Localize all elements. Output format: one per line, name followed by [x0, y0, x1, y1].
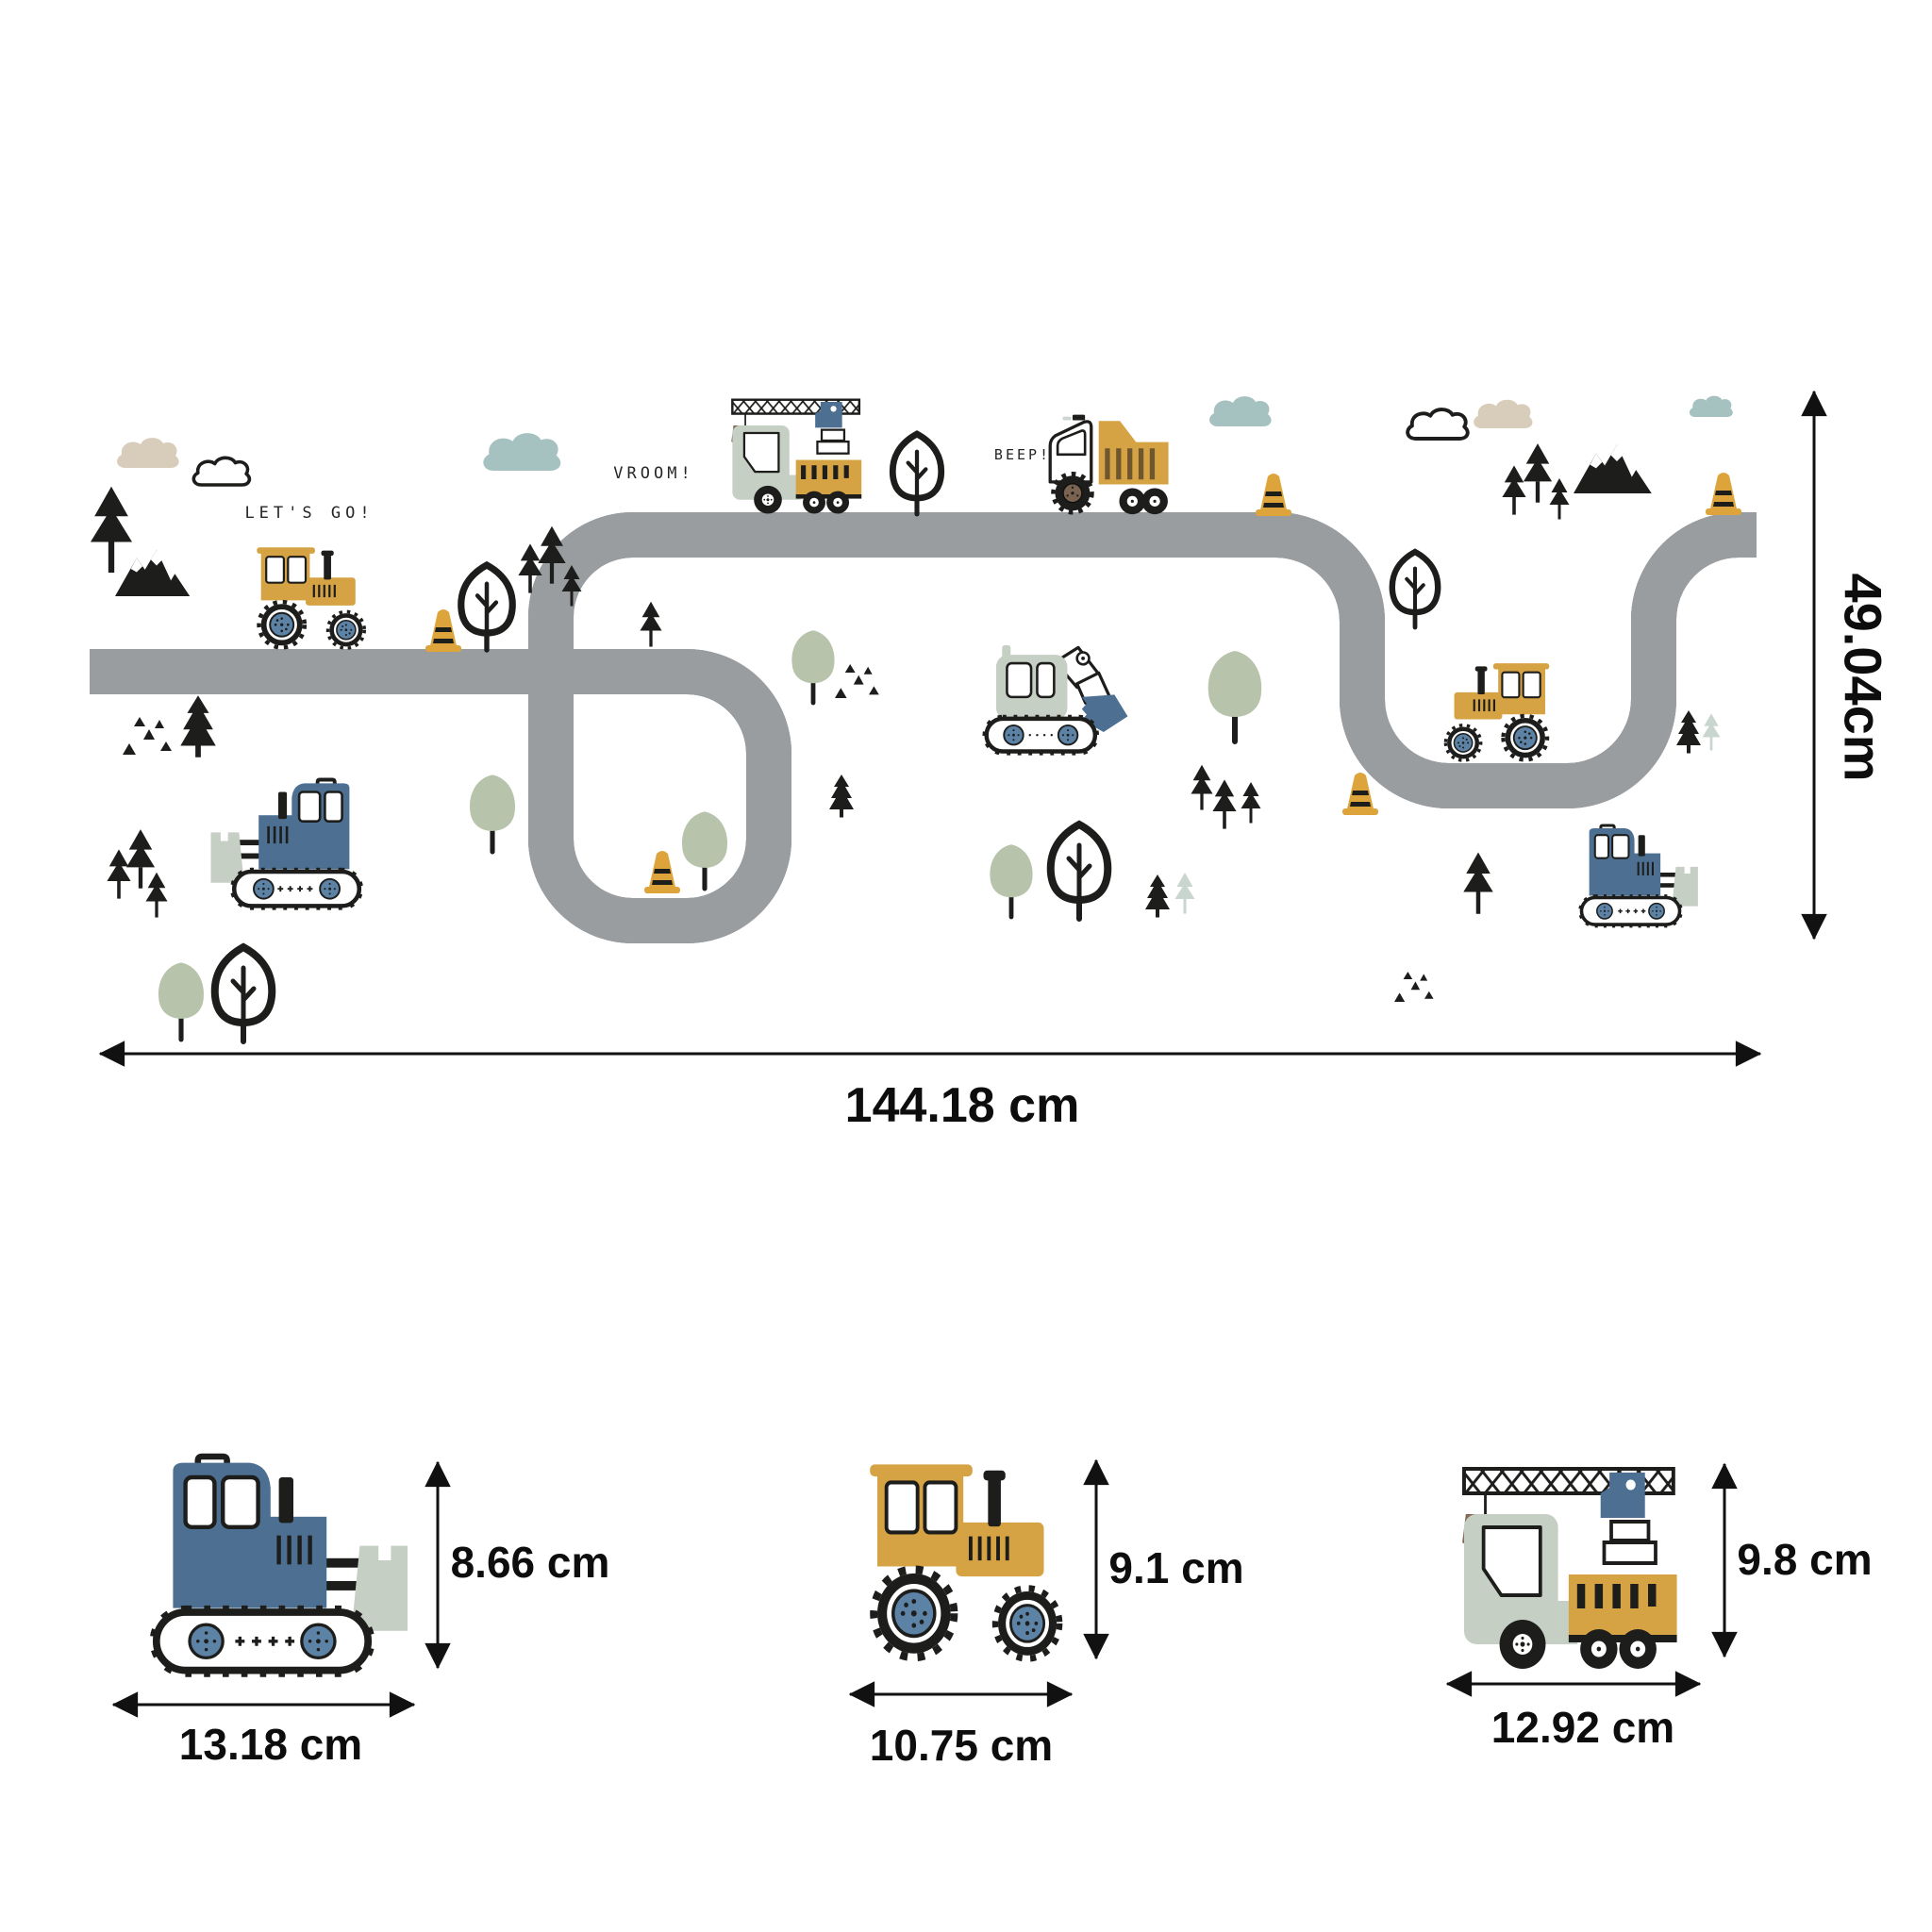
- cloud-icon: [1209, 396, 1272, 426]
- bulldozer-icon: [210, 780, 358, 907]
- crane-truck-width-label: 12.92 cm: [1491, 1702, 1674, 1753]
- pine-tree-icon: [1502, 465, 1525, 514]
- cloud-icon: [1690, 396, 1733, 417]
- round-tree-icon: [682, 811, 727, 889]
- cloud-icon: [117, 438, 179, 468]
- mountains-icon: [115, 550, 190, 596]
- triangle-rocks-icon: [1394, 972, 1434, 1002]
- pine-tree-icon: [1550, 478, 1570, 520]
- item-figures: [157, 1457, 1677, 1671]
- triangle-rocks-icon: [123, 717, 172, 755]
- pine-tree-icon: [107, 849, 130, 898]
- pine-tree-icon: [1241, 782, 1261, 824]
- traffic-cone-icon: [1706, 473, 1741, 515]
- cloud-icon: [483, 433, 560, 471]
- cloud-outline-icon: [193, 458, 249, 485]
- pine-tree-icon: [126, 829, 155, 889]
- bulldozer-item-icon: [157, 1457, 408, 1671]
- pale-pine-tree-icon: [1703, 713, 1721, 750]
- cloud-icon: [1474, 400, 1532, 428]
- speech-lets-go: LET'S GO!: [244, 504, 374, 523]
- scene-height-label: 49.04cm: [1833, 573, 1894, 781]
- crane-truck-item-icon: [1462, 1469, 1676, 1669]
- pine-tree-icon: [1676, 710, 1701, 754]
- tractor-icon: [1445, 663, 1549, 760]
- triangle-rocks-icon: [835, 664, 879, 698]
- round-tree-icon: [990, 844, 1032, 917]
- scene-width-label: 144.18 cm: [845, 1077, 1080, 1134]
- pine-tree-icon: [1212, 779, 1236, 828]
- cloud-outline-icon: [1407, 409, 1468, 439]
- pine-tree-icon: [1145, 874, 1170, 918]
- pine-tree-icon: [1524, 443, 1552, 503]
- traffic-cone-icon: [1256, 474, 1291, 516]
- pine-tree-icon: [1191, 765, 1212, 810]
- bulldozer-width-label: 13.18 cm: [179, 1719, 362, 1770]
- pine-tree-icon: [180, 695, 215, 758]
- outline-tree-icon: [1392, 552, 1438, 627]
- mountains-icon: [1574, 444, 1652, 493]
- crane-truck-height-label: 9.8 cm: [1737, 1534, 1872, 1585]
- tractor-height-label: 9.1 cm: [1108, 1542, 1243, 1593]
- outline-tree-icon: [461, 565, 512, 650]
- bulldozer-icon: [1581, 825, 1697, 924]
- round-tree-icon: [1208, 651, 1262, 741]
- tractor-item-icon: [870, 1464, 1059, 1658]
- pale-pine-tree-icon: [1175, 873, 1195, 914]
- round-tree-icon: [791, 630, 834, 703]
- tractor-width-label: 10.75 cm: [870, 1720, 1053, 1771]
- pine-tree-icon: [91, 487, 132, 573]
- pine-tree-icon: [1463, 853, 1493, 914]
- traffic-cone-icon: [425, 609, 461, 652]
- crane-truck-icon: [731, 400, 861, 514]
- dump-truck-icon: [1050, 415, 1168, 515]
- outline-tree-icon: [215, 947, 273, 1041]
- round-tree-icon: [158, 962, 204, 1040]
- traffic-cone-icon: [644, 851, 680, 893]
- pine-tree-icon: [145, 873, 167, 918]
- bulldozer-height-label: 8.66 cm: [451, 1537, 610, 1588]
- product-dimension-diagram: LET'S GO! VROOM! BEEP! 144.18 cm 49.04cm…: [0, 0, 1932, 1932]
- speech-beep: BEEP!: [994, 446, 1051, 463]
- outline-tree-icon: [1051, 824, 1108, 919]
- outline-tree-icon: [892, 434, 941, 514]
- excavator-icon: [987, 645, 1128, 752]
- round-tree-icon: [470, 774, 515, 852]
- tractor-icon: [257, 547, 364, 648]
- pine-tree-icon: [829, 774, 854, 818]
- traffic-cone-icon: [1342, 773, 1378, 815]
- pine-tree-icon: [640, 602, 661, 647]
- speech-vroom: VROOM!: [613, 464, 693, 483]
- decal-scene-figure: [0, 0, 1932, 1932]
